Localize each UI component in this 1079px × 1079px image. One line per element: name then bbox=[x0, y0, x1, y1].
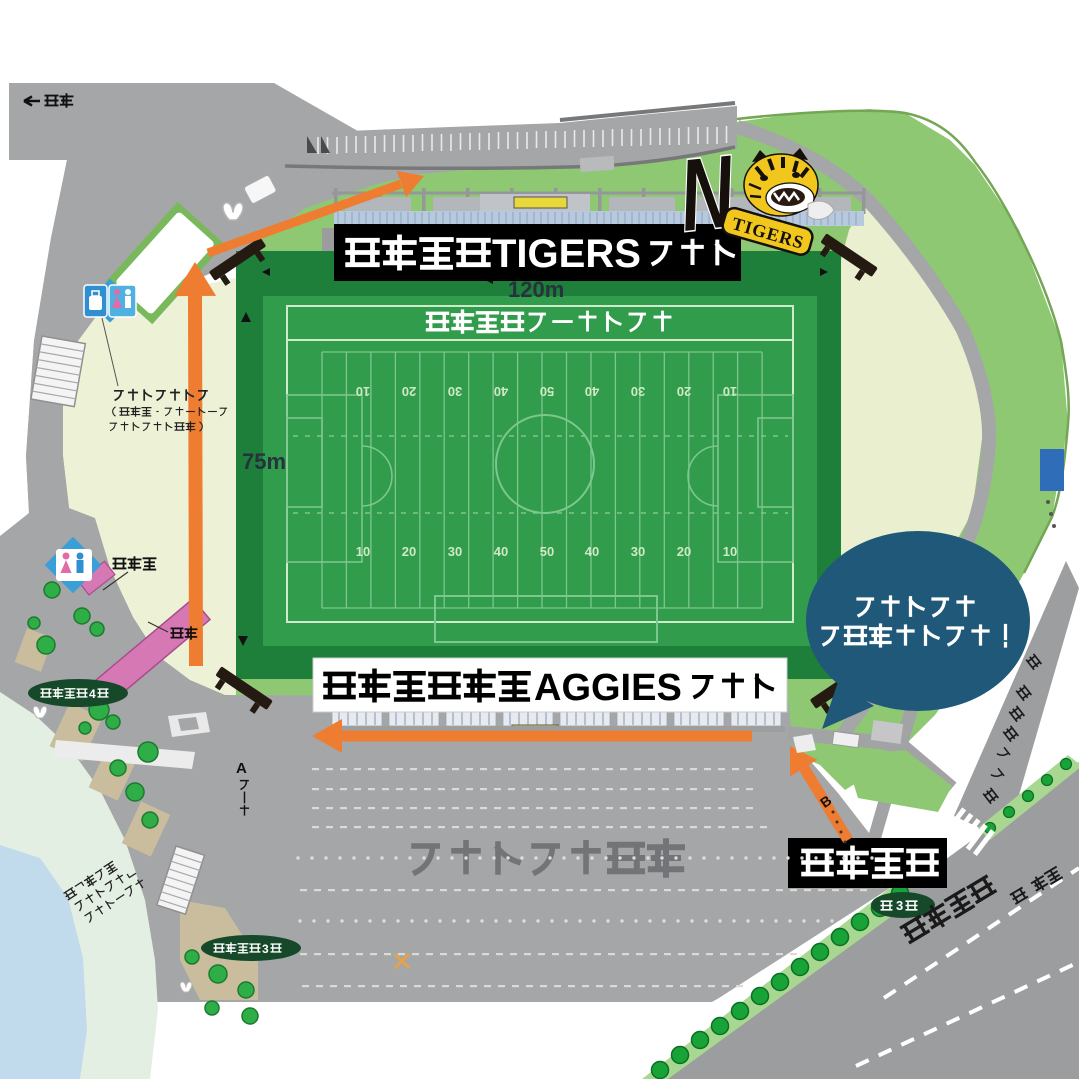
svg-text:75m: 75m bbox=[242, 449, 286, 474]
svg-text:10: 10 bbox=[356, 384, 370, 399]
svg-text:AGGIES: AGGIES bbox=[534, 667, 682, 709]
svg-text:3: 3 bbox=[896, 898, 903, 913]
svg-text:A: A bbox=[236, 760, 247, 777]
svg-text:30: 30 bbox=[448, 544, 462, 559]
svg-text:50: 50 bbox=[540, 384, 554, 399]
svg-text:40: 40 bbox=[585, 384, 599, 399]
svg-text:50: 50 bbox=[540, 544, 554, 559]
svg-text:20: 20 bbox=[677, 384, 691, 399]
svg-text:40: 40 bbox=[585, 544, 599, 559]
svg-text:4: 4 bbox=[89, 687, 96, 701]
svg-text:40: 40 bbox=[494, 544, 508, 559]
svg-text:10: 10 bbox=[723, 384, 737, 399]
svg-text:30: 30 bbox=[631, 384, 645, 399]
svg-text:20: 20 bbox=[677, 544, 691, 559]
svg-text:10: 10 bbox=[356, 544, 370, 559]
svg-text:TIGERS: TIGERS bbox=[492, 232, 641, 276]
svg-text:30: 30 bbox=[448, 384, 462, 399]
svg-text:3: 3 bbox=[262, 942, 269, 956]
svg-text:10: 10 bbox=[723, 544, 737, 559]
svg-text:20: 20 bbox=[402, 384, 416, 399]
svg-text:20: 20 bbox=[402, 544, 416, 559]
svg-text:40: 40 bbox=[494, 384, 508, 399]
svg-text:30: 30 bbox=[631, 544, 645, 559]
